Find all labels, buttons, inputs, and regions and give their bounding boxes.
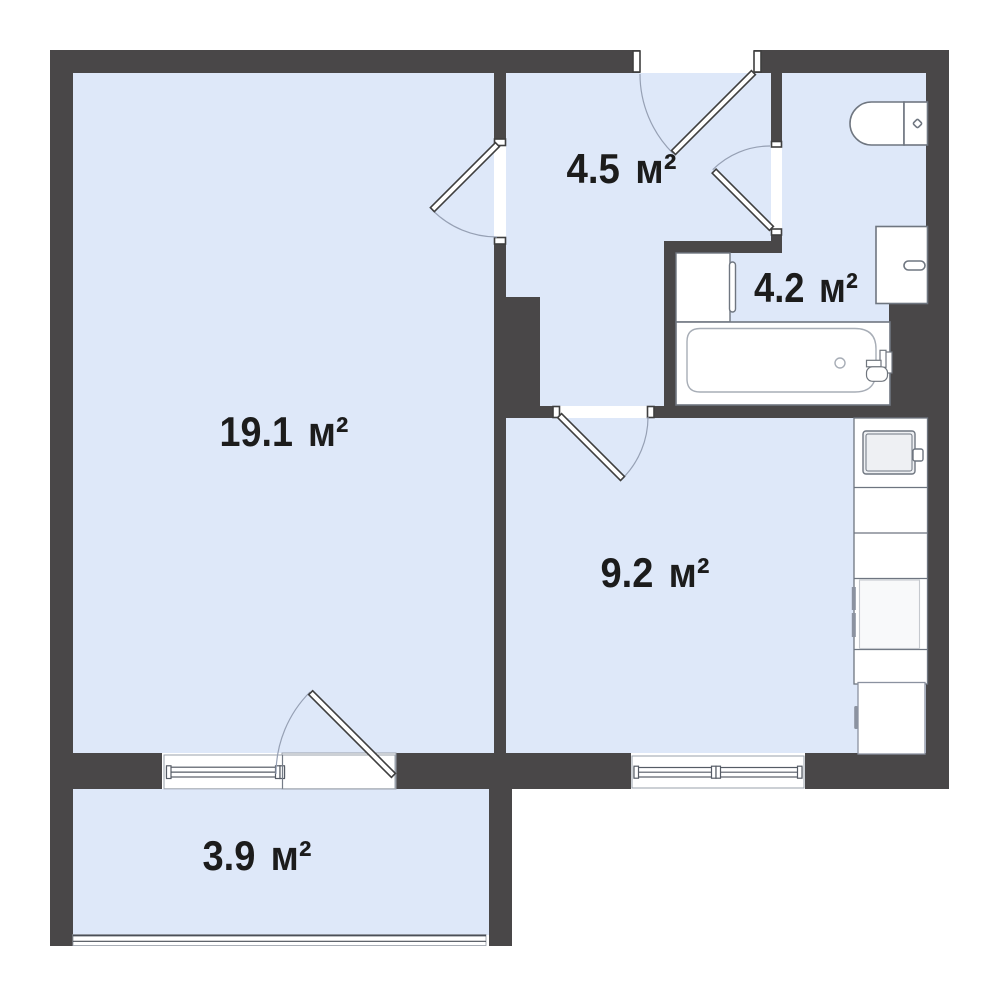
svg-text:3.9 м²: 3.9 м² xyxy=(203,832,312,879)
svg-text:4.5 м²: 4.5 м² xyxy=(567,145,677,192)
svg-text:19.1 м²: 19.1 м² xyxy=(220,408,349,455)
svg-text:9.2 м²: 9.2 м² xyxy=(601,549,710,596)
svg-text:4.2 м²: 4.2 м² xyxy=(754,264,858,311)
